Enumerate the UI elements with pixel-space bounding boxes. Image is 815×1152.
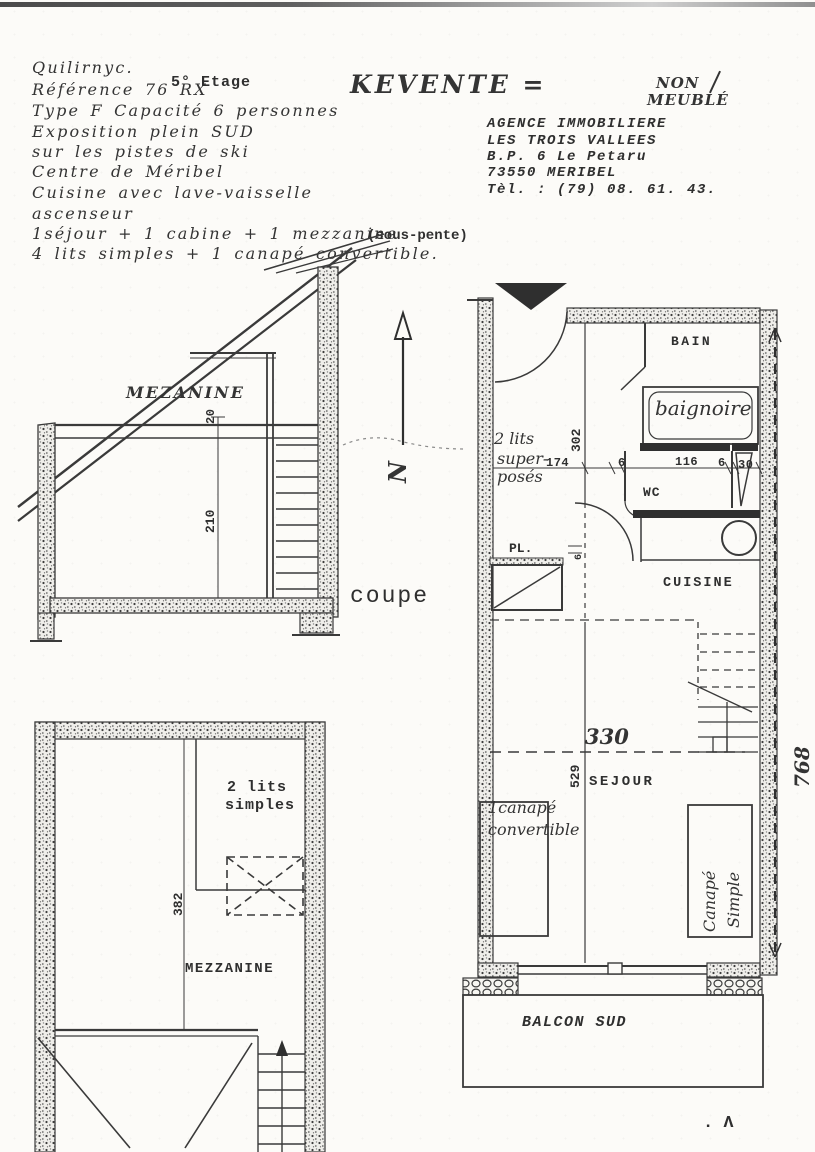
note-canape-1: 1canapé bbox=[488, 798, 556, 817]
coupe-label: coupe bbox=[350, 583, 429, 609]
pattern-defs bbox=[0, 0, 1, 1]
dim-20: 20 bbox=[204, 409, 218, 424]
dim-768: 768 bbox=[790, 746, 814, 788]
window-center-post bbox=[608, 963, 622, 974]
north-arrow-icon bbox=[395, 313, 411, 445]
dim-6a: 6 bbox=[618, 456, 626, 470]
stair-direction-arrow bbox=[276, 1040, 288, 1056]
main-floor-plan bbox=[460, 250, 815, 1100]
dim-116: 116 bbox=[675, 455, 698, 469]
label-baignoire: baignoire bbox=[655, 396, 752, 420]
header-line-centre: Centre de Méribel bbox=[32, 162, 224, 181]
coupe-mezzanine-label: MEZANINE bbox=[126, 383, 245, 402]
room-label-mezzanine: MEZZANINE bbox=[185, 961, 274, 977]
header-line-pistes: sur les pistes de ski bbox=[32, 142, 250, 161]
agency-city: 73550 MERIBEL bbox=[487, 165, 617, 181]
header-line-ascenseur: ascenseur bbox=[32, 204, 134, 223]
void-opening-dashed bbox=[227, 857, 303, 915]
bain-door-leaf bbox=[621, 367, 645, 390]
agency-address: B.P. 6 Le Petaru bbox=[487, 149, 647, 165]
room-label-balcon: BALCON SUD bbox=[522, 1014, 627, 1031]
north-letter: N bbox=[383, 461, 412, 483]
check-mark-icon bbox=[709, 71, 721, 94]
agency-name: AGENCE IMMOBILIERE bbox=[487, 116, 667, 132]
note-canape-simple-1: Canapé bbox=[700, 871, 719, 932]
sink-circle bbox=[722, 521, 756, 555]
dim-330: 330 bbox=[585, 724, 629, 749]
meuble-label: MEUBLÉ bbox=[647, 91, 729, 109]
mezz-beds-1: 2 lits bbox=[227, 779, 287, 796]
floor-typed-label: 5° Etage bbox=[171, 74, 251, 91]
room-label-bain: BAIN bbox=[671, 334, 712, 349]
dim-174: 174 bbox=[546, 456, 569, 470]
stairs-lower bbox=[698, 702, 758, 752]
agency-name-2: LES TROIS VALLEES bbox=[487, 133, 657, 149]
note-lits-3: posés bbox=[497, 467, 543, 486]
ladder-rungs bbox=[276, 445, 318, 589]
header-line-building: Quilirnyc. bbox=[32, 58, 134, 77]
note-canape-simple-2: Simple bbox=[724, 872, 743, 928]
entrance-door-arc bbox=[495, 312, 567, 382]
stairs-upper-dashed bbox=[700, 634, 758, 687]
non-label: NON bbox=[656, 74, 700, 92]
note-lits-2: super- bbox=[497, 449, 548, 468]
balcony-outline bbox=[463, 995, 763, 1087]
agency-phone: Tèl. : (79) 08. 61. 43. bbox=[487, 182, 717, 198]
note-canape-2: convertible bbox=[488, 820, 579, 839]
room-label-placard: PL. bbox=[509, 541, 532, 556]
dim-30: 30 bbox=[738, 458, 753, 472]
header-line-cuisine: Cuisine avec lave-vaisselle bbox=[32, 183, 313, 202]
scan-artifact-top-bar bbox=[0, 2, 815, 7]
sale-title: KEVENTE = bbox=[350, 70, 546, 99]
dim-6-door: 6 bbox=[574, 554, 585, 560]
dim-210: 210 bbox=[203, 510, 218, 533]
mezz-beds-2: simples bbox=[225, 797, 295, 814]
scanned-listing-sheet: Quilirnyc. Référence 76 RX Type F Capaci… bbox=[0, 0, 815, 1152]
room-label-sejour: SEJOUR bbox=[589, 774, 654, 790]
room-label-wc: WC bbox=[643, 485, 661, 500]
dim-529: 529 bbox=[568, 765, 583, 788]
cabine-door-arc bbox=[575, 503, 633, 561]
dim-302: 302 bbox=[569, 429, 584, 452]
page-corner-mark: . Λ bbox=[703, 1114, 734, 1133]
header-line-exposition: Exposition plein SUD bbox=[32, 122, 255, 141]
header-line-type: Type F Capacité 6 personnes bbox=[32, 101, 339, 120]
note-lits-1: 2 lits bbox=[494, 429, 534, 448]
mezzanine-floor-plan bbox=[10, 700, 350, 1152]
dim-6b: 6 bbox=[718, 456, 726, 470]
dim-382: 382 bbox=[171, 893, 186, 916]
room-label-cuisine: CUISINE bbox=[663, 576, 734, 591]
entrance-arrow-icon bbox=[495, 283, 567, 310]
